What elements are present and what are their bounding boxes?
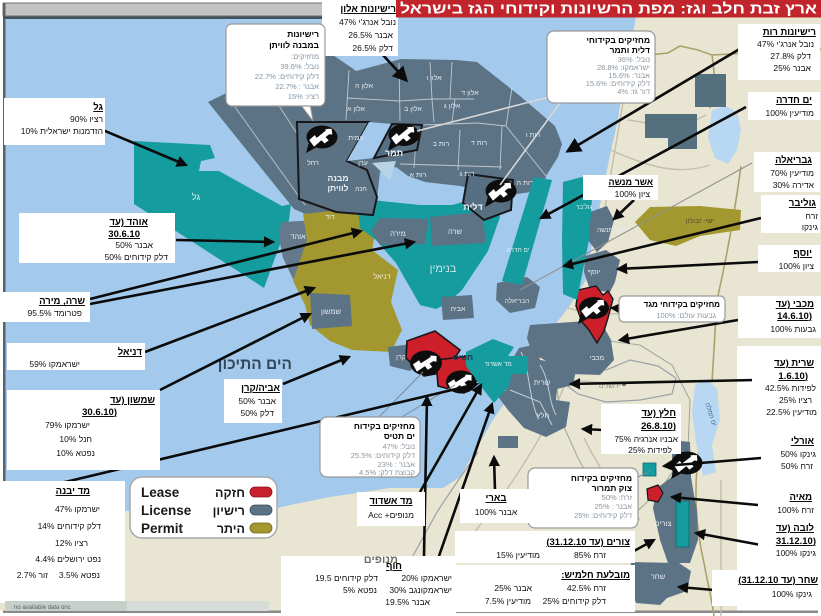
svg-text:אבניו אנרגיה 75%: אבניו אנרגיה 75% <box>614 434 678 444</box>
svg-text:מובלעת חלמיש:: מובלעת חלמיש: <box>561 570 630 581</box>
svg-text:גינקו 100%: גינקו 100% <box>776 548 817 558</box>
svg-text:דלית ותמר: דלית ותמר <box>610 45 650 55</box>
svg-text:שחר (עד 31.12.10): שחר (עד 31.12.10) <box>738 575 818 586</box>
svg-text:בנימין: בנימין <box>430 263 457 275</box>
svg-text:(26.8.10: (26.8.10 <box>641 421 676 432</box>
svg-text:זור 2.7%: זור 2.7% <box>17 570 48 580</box>
svg-text:פטרומד 95.5%: פטרומד 95.5% <box>27 308 82 318</box>
svg-text:קבוצת דלק: 4.5%: קבוצת דלק: 4.5% <box>359 468 416 477</box>
svg-text:רציו: 15%: רציו: 15% <box>288 92 319 101</box>
svg-text:מחזיקים בקידוחי מגד: מחזיקים בקידוחי מגד <box>644 300 721 309</box>
svg-text:נובל: 39.6%: נובל: 39.6% <box>280 62 319 71</box>
svg-text:ים חדרה: ים חדרה <box>506 247 529 254</box>
svg-text:אלון ד: אלון ד <box>461 89 479 97</box>
svg-text:אוהד (עד: אוהד (עד <box>109 217 148 228</box>
svg-text:מודיעין 7.5%: מודיעין 7.5% <box>485 596 531 606</box>
svg-text:אשר מנשה: אשר מנשה <box>597 227 627 234</box>
svg-text:רישיונות רות: רישיונות רות <box>763 27 816 38</box>
svg-text:מד אשדוד: מד אשדוד <box>484 361 511 368</box>
svg-text:חלץ (עד: חלץ (עד <box>641 408 676 419</box>
svg-text:אשר מנשה: אשר מנשה <box>609 177 653 187</box>
svg-text:לוויתן: לוויתן <box>327 183 348 193</box>
svg-text:מחזיקים בקידוח: מחזיקים בקידוח <box>571 473 632 483</box>
svg-text:דניאל: דניאל <box>373 272 391 281</box>
svg-text:ציון 100%: ציון 100% <box>615 189 651 199</box>
svg-text:זרח 50%: זרח 50% <box>781 461 813 471</box>
svg-text:License: License <box>141 503 192 518</box>
svg-text:שמשון: שמשון <box>321 307 341 316</box>
svg-text:אלון ב: אלון ב <box>404 105 422 113</box>
svg-text:רות ג: רות ג <box>459 171 475 178</box>
svg-text:ים חדרה: ים חדרה <box>776 95 812 106</box>
svg-text:אלון ה: אלון ה <box>355 82 374 90</box>
svg-text:דניאל: דניאל <box>118 347 143 358</box>
svg-text:תמר: תמר <box>385 148 403 158</box>
svg-text:אבנר : 25%: אבנר : 25% <box>595 502 633 511</box>
svg-text:לובה (עד: לובה (עד <box>776 523 814 534</box>
svg-text:גבעות 100%: גבעות 100% <box>770 324 816 334</box>
svg-text:מודיעין 15%: מודיעין 15% <box>496 550 540 560</box>
svg-text:אלון ג: אלון ג <box>444 102 461 110</box>
svg-text:מחזיקים בקידוחי: מחזיקים בקידוחי <box>586 35 650 45</box>
svg-text:דלק 50%: דלק 50% <box>240 408 274 418</box>
svg-text:ארץ זבת חלב וגז: מפת הרשיונות: ארץ זבת חלב וגז: מפת הרשיונות וקידוחי הג… <box>400 2 817 18</box>
svg-text:אדירה 30%: אדירה 30% <box>773 180 815 190</box>
svg-text:מאיה: מאיה <box>790 492 813 503</box>
svg-text:אבנר 19.5%: אבנר 19.5% <box>385 597 430 607</box>
svg-text:רציו 90%: רציו 90% <box>70 114 103 124</box>
svg-text:חנל 10%: חנל 10% <box>59 434 92 444</box>
svg-text:דלק קידוחים: 22.7%: דלק קידוחים: 22.7% <box>255 72 319 81</box>
svg-text:חלץ: חלץ <box>537 411 550 420</box>
svg-text:אורלי: אורלי <box>791 436 815 447</box>
svg-text:אבנר 25%: אבנר 25% <box>494 583 532 593</box>
svg-text:רות ב: רות ב <box>433 141 450 148</box>
svg-text:גבריאלה: גבריאלה <box>775 155 812 166</box>
svg-text:Permit: Permit <box>141 521 184 536</box>
svg-text:מבנה: מבנה <box>327 173 348 183</box>
svg-text:הזדמנות ישראלית 10%: הזדמנות ישראלית 10% <box>21 126 103 136</box>
svg-text:חזקה: חזקה <box>215 486 245 500</box>
svg-text:זרח 100%: זרח 100% <box>777 505 814 515</box>
svg-text:גול'בר: גול'בר <box>576 203 593 211</box>
svg-text:לפידות 42.5%: לפידות 42.5% <box>765 383 816 393</box>
svg-text:גינקו: גינקו <box>802 222 819 232</box>
svg-text:דלק קידוחים: 25.5%: דלק קידוחים: 25.5% <box>351 451 415 460</box>
svg-text:דלק קידוחים 25%: דלק קידוחים 25% <box>543 596 607 606</box>
svg-text:(30.6.10: (30.6.10 <box>82 407 117 418</box>
svg-text:דלית: דלית <box>463 202 482 212</box>
svg-text:ישי- זבולון: ישי- זבולון <box>686 217 715 225</box>
svg-text:צורים: צורים <box>655 519 672 528</box>
svg-text:יוסף: יוסף <box>588 269 601 276</box>
svg-text:במבנה לוויתן: במבנה לוויתן <box>269 40 319 50</box>
svg-text:מנופים+ Acc: מנופים+ Acc <box>368 510 414 520</box>
svg-text:גינקו 50%: גינקו 50% <box>780 449 816 459</box>
svg-text:מחזיקים בקידוח: מחזיקים בקידוח <box>354 421 415 431</box>
svg-text:אלון א: אלון א <box>347 105 366 113</box>
svg-text:צוק תמרור: צוק תמרור <box>592 483 632 493</box>
svg-text:היתר: היתר <box>217 522 245 536</box>
svg-text:אבנר 26.5%: אבנר 26.5% <box>348 30 393 40</box>
svg-text:ערן: ערן <box>358 160 368 167</box>
svg-text:זרח: 50%: זרח: 50% <box>602 493 633 502</box>
svg-text:רות א: רות א <box>410 172 427 179</box>
svg-text:מודיעין 70%: מודיעין 70% <box>770 168 814 178</box>
svg-text:צורים (עד 31.12.10): צורים (עד 31.12.10) <box>546 537 630 548</box>
svg-text:מכבי: מכבי <box>590 355 605 362</box>
svg-text:אבנר 50%: אבנר 50% <box>115 240 153 250</box>
svg-text:נובל אנרג'י 47%: נובל אנרג'י 47% <box>757 39 814 49</box>
svg-text:no available data onc: no available data onc <box>14 605 71 611</box>
svg-text:נובל: 47%: נובל: 47% <box>383 442 415 451</box>
svg-text:גל: גל <box>93 102 103 113</box>
svg-text:נפטא 5%: נפטא 5% <box>343 585 377 595</box>
svg-text:קרן: קרן <box>396 354 406 361</box>
svg-text:ישרמקו 79%: ישרמקו 79% <box>45 420 90 430</box>
svg-text:זרח 42.5%: זרח 42.5% <box>567 583 606 593</box>
svg-text:רציו 12%: רציו 12% <box>55 538 88 548</box>
svg-text:מודיעין 22.5%: מודיעין 22.5% <box>766 407 817 417</box>
svg-text:אבנר 100%: אבנר 100% <box>475 507 518 517</box>
svg-text:אבנר 50%: אבנר 50% <box>238 396 276 406</box>
svg-text:אביה/קרן: אביה/קרן <box>241 383 280 394</box>
svg-text:דוד: דוד <box>325 214 335 221</box>
svg-text:דלק קידוחים: 25%: דלק קידוחים: 25% <box>574 511 632 520</box>
svg-text:30.6.10: 30.6.10 <box>108 229 140 240</box>
svg-text:שמשון (עד: שמשון (עד <box>110 395 155 406</box>
svg-text:ישראמקו 20%: ישראמקו 20% <box>401 573 452 583</box>
svg-text:דלק 26.5%: דלק 26.5% <box>352 43 393 53</box>
svg-text:אביה: אביה <box>451 306 466 313</box>
svg-text:אבנר 25%: אבנר 25% <box>773 63 811 73</box>
svg-text:גבעות עולם: 100%: גבעות עולם: 100% <box>656 311 716 320</box>
svg-text:נפטא 10%: נפטא 10% <box>56 448 95 458</box>
svg-text:דלק קידוחים 50%: דלק קידוחים 50% <box>105 252 169 262</box>
svg-text:מכבי (עד: מכבי (עד <box>776 299 814 310</box>
svg-text:שרית (עד: שרית (עד <box>774 358 814 369</box>
svg-text:גל: גל <box>192 192 201 202</box>
svg-text:שרה, מירה: שרה, מירה <box>39 296 85 307</box>
svg-text:ציון 100%: ציון 100% <box>779 261 815 271</box>
svg-text:גינקו 100%: גינקו 100% <box>772 589 813 599</box>
svg-text:גוליבר: גוליבר <box>789 198 817 209</box>
svg-text:מירה: מירה <box>390 229 406 238</box>
svg-text:רות ה: רות ה <box>517 180 534 187</box>
svg-text:לפידות 25%: לפידות 25% <box>628 445 672 455</box>
svg-text:(31.12.10: (31.12.10 <box>776 536 816 547</box>
svg-text:רישיונות: רישיונות <box>287 29 319 39</box>
svg-text:אלון ו: אלון ו <box>426 74 442 82</box>
svg-text:זרח: זרח <box>805 211 818 221</box>
svg-text:דלק קידוחים 14%: דלק קידוחים 14% <box>38 521 102 531</box>
svg-text:ישראמקונגב 30%: ישראמקונגב 30% <box>389 585 452 595</box>
svg-text:מנופים: מנופים <box>364 554 398 566</box>
svg-text:בארי: בארי <box>486 493 507 504</box>
svg-text:רות ד: רות ד <box>471 140 487 147</box>
svg-text:אוהד: אוהד <box>290 232 306 241</box>
svg-text:הים התיכון: הים התיכון <box>218 356 292 373</box>
svg-text:מד אשדוד: מד אשדוד <box>370 496 413 507</box>
svg-text:יוסף: יוסף <box>793 248 812 259</box>
svg-text:דור גז: 4%: דור גז: 4% <box>617 87 650 96</box>
svg-text:רציו 25%: רציו 25% <box>779 395 812 405</box>
svg-text:חנה: חנה <box>355 186 367 193</box>
svg-text:מודיעין 100%: מודיעין 100% <box>766 108 815 118</box>
svg-text:תטיס: תטיס <box>453 352 473 362</box>
svg-text:דלק 27.8%: דלק 27.8% <box>770 51 811 61</box>
svg-text:ים תטיס: ים תטיס <box>384 431 415 441</box>
svg-text:נובל אנרג'י 47%: נובל אנרג'י 47% <box>339 17 396 27</box>
svg-text:דלק קידוחים 19.5: דלק קידוחים 19.5 <box>315 573 378 583</box>
svg-text:זרח 85%: זרח 85% <box>574 550 606 560</box>
svg-text:(14.6.10: (14.6.10 <box>777 311 812 322</box>
svg-text:(1.6.10: (1.6.10 <box>778 371 808 382</box>
svg-text:נפטא 3.5%: נפטא 3.5% <box>59 570 100 580</box>
svg-text:נפט ירושלים 4.4%: נפט ירושלים 4.4% <box>35 554 101 564</box>
svg-text:Lease: Lease <box>141 485 180 500</box>
svg-text:שחר: שחר <box>651 572 666 581</box>
svg-text:עמית: עמית <box>348 135 363 142</box>
svg-text:ישראמקו 59%: ישראמקו 59% <box>29 359 80 369</box>
svg-text:מחזיקים:: מחזיקים: <box>291 52 319 61</box>
svg-text:הבריאלה: הבריאלה <box>505 297 530 305</box>
svg-text:שרית: שרית <box>534 378 551 387</box>
svg-text:שרה: שרה <box>448 227 463 236</box>
svg-text:ישרמקו 47%: ישרמקו 47% <box>55 504 100 514</box>
svg-text:מד יבנה: מד יבנה <box>56 486 90 497</box>
svg-text:רחל: רחל <box>307 159 319 167</box>
svg-text:רישיון: רישיון <box>213 504 245 518</box>
svg-text:רישיונות אלון: רישיונות אלון <box>340 4 396 15</box>
svg-text:אבנר : 22.7%: אבנר : 22.7% <box>275 82 319 91</box>
